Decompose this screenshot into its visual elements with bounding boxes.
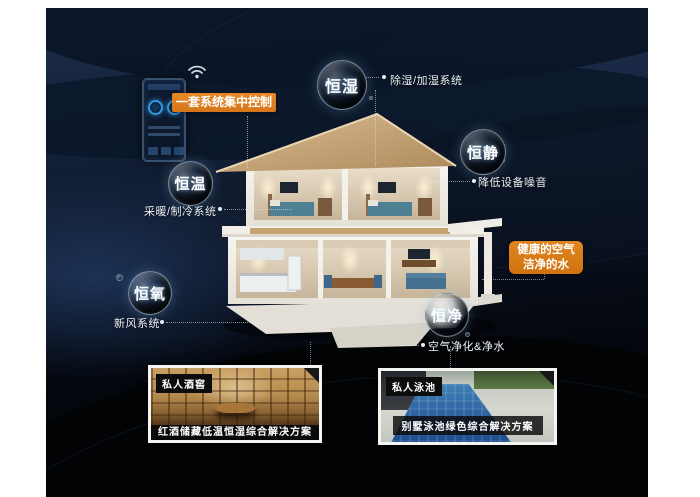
annotation-noise-reduction: 降低设备噪音: [478, 174, 547, 190]
photo-pool: 私人泳池 别墅泳池绿色综合解决方案: [378, 368, 557, 445]
clean-water-line: 洁净的水: [509, 258, 583, 273]
decorative-bubble: [465, 332, 470, 337]
phone-button: [161, 147, 171, 155]
annotation-purification-system: 空气净化&净水: [428, 338, 505, 354]
poster-page: 一套系统集中控制 健康的空气 洁净的水 恒湿 恒静 恒温 恒氧 恒净 除湿/加湿…: [0, 0, 700, 497]
photo-corner-ribbon: [304, 368, 319, 383]
connector-line: [430, 181, 470, 182]
photo-corner-ribbon: [539, 371, 554, 386]
phone-button: [174, 147, 184, 155]
connector-line: [247, 116, 248, 168]
connector-line: [224, 209, 292, 210]
healthy-air-line: 健康的空气: [509, 243, 583, 258]
connector-line: [375, 90, 376, 166]
connector-line: [398, 345, 419, 346]
bubble-purity: 恒净: [425, 293, 469, 337]
connector-dot: [421, 343, 425, 347]
photo-tag: 私人泳池: [386, 377, 442, 396]
connector-line: [482, 279, 544, 280]
bubble-temperature: 恒温: [168, 161, 213, 206]
healthy-air-water-callout: 健康的空气 洁净的水: [509, 241, 583, 274]
phone-button: [148, 147, 158, 155]
phone-info-row: [148, 126, 180, 129]
bubble-purity-label: 恒净: [431, 305, 463, 326]
bubble-humidity-label: 恒湿: [325, 73, 359, 97]
central-control-callout: 一套系统集中控制: [172, 93, 276, 112]
bubble-oxygen-label: 恒氧: [134, 283, 166, 304]
phone-info-row: [148, 133, 180, 136]
wifi-icon: [187, 62, 207, 79]
annotation-hvac-system: 采暖/制冷系统: [144, 203, 217, 219]
wine-table-graphic: [215, 403, 255, 413]
bubble-oxygen: 恒氧: [128, 271, 172, 315]
bubble-temperature-label: 恒温: [174, 173, 206, 194]
annotation-humidity-system: 除湿/加湿系统: [390, 72, 463, 88]
connector-line: [310, 342, 311, 365]
poster-scene: 一套系统集中控制 健康的空气 洁净的水 恒湿 恒静 恒温 恒氧 恒净 除湿/加湿…: [46, 8, 648, 497]
phone-dial-icon: [148, 100, 163, 115]
bubble-humidity: 恒湿: [317, 60, 367, 110]
connector-line: [366, 77, 379, 78]
connector-dot: [160, 320, 164, 324]
smart-control-phone: [142, 78, 186, 162]
phone-status-bar: [148, 84, 180, 90]
photo-caption: 别墅泳池绿色综合解决方案: [393, 416, 543, 435]
photo-caption: 红酒储藏低温恒湿综合解决方案: [151, 425, 319, 440]
photo-wine-cellar: 私人酒窖 红酒储藏低温恒湿综合解决方案: [148, 365, 322, 443]
bubble-quiet: 恒静: [460, 129, 506, 175]
connector-line: [166, 322, 336, 323]
decorative-bubble: [369, 96, 373, 100]
connector-dot: [382, 75, 386, 79]
decorative-bubble: [116, 274, 123, 281]
photo-tag: 私人酒窖: [156, 374, 212, 393]
connector-dot: [218, 207, 222, 211]
connector-dot: [472, 179, 476, 183]
bubble-quiet-label: 恒静: [467, 142, 499, 163]
annotation-fresh-air-system: 新风系统: [114, 315, 160, 331]
